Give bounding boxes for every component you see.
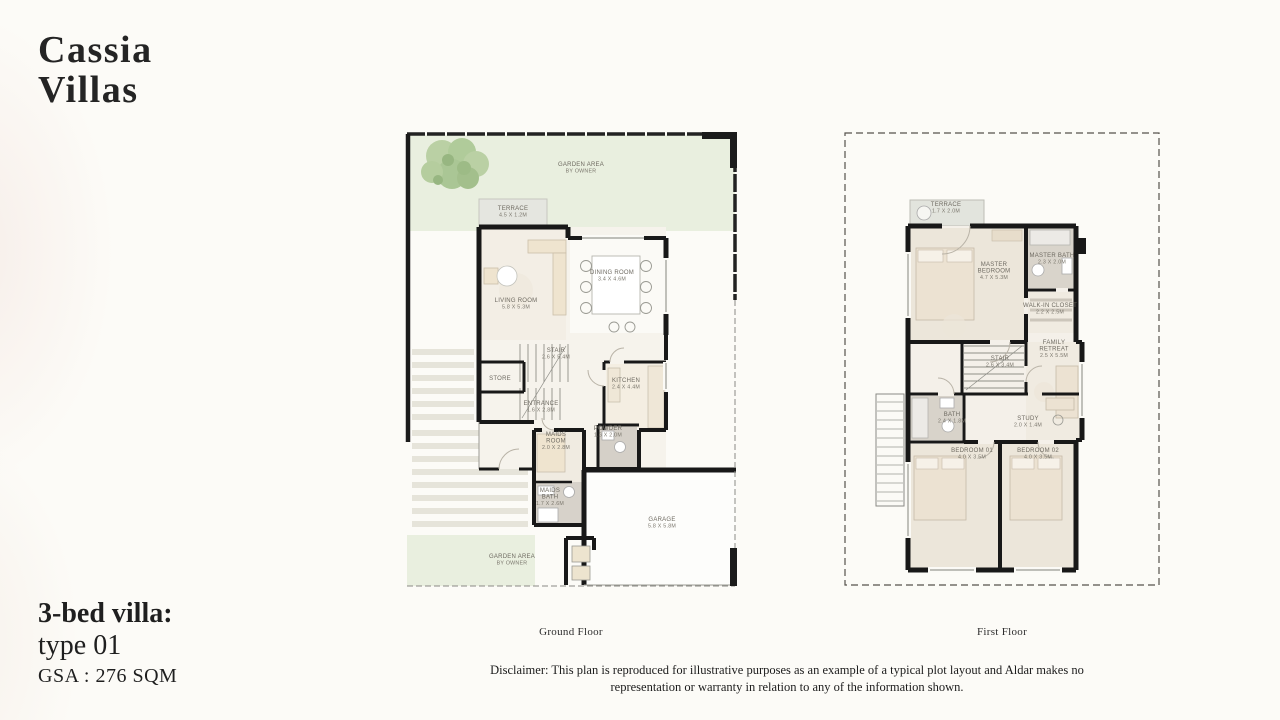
room-label-kitchen: KITCHEN2.4 X 4.4M (612, 378, 640, 391)
room-label-master-bedroom: MASTERBEDROOM4.7 X 5.3M (978, 262, 1011, 281)
title-line-1: Cassia (38, 30, 153, 70)
side-hatch-strip (876, 394, 904, 506)
caption-ground-floor: Ground Floor (404, 626, 738, 638)
villa-type-subtitle: type 01 (38, 630, 177, 662)
villa-type-title: 3-bed villa: (38, 598, 177, 630)
first-floor-svg: TERRACE1.7 X 2.0M MASTERBEDROOM4.7 X 5.3… (842, 130, 1162, 590)
first-floor-plan: TERRACE1.7 X 2.0M MASTERBEDROOM4.7 X 5.3… (842, 130, 1162, 590)
villa-gsa: GSA : 276 SQM (38, 662, 177, 690)
page-title: Cassia Villas (38, 30, 153, 110)
room-label-powder: POWDER1.6 X 2.0M (594, 426, 623, 439)
caption-first-floor: First Floor (842, 626, 1162, 638)
room-label-garage: GARAGE5.8 X 5.8M (648, 517, 676, 530)
room-label-terrace-ground: TERRACE4.5 X 1.2M (498, 206, 528, 219)
ground-floor-plan: GARDEN AREABY OWNER TERRACE4.5 X 1.2M LI… (404, 130, 738, 590)
villa-info: 3-bed villa: type 01 GSA : 276 SQM (38, 598, 177, 690)
disclaimer-text: Disclaimer: This plan is reproduced for … (480, 662, 1094, 696)
room-label-family-retreat: FAMILYRETREAT2.5 X 5.5M (1039, 340, 1068, 359)
room-label-terrace-first: TERRACE1.7 X 2.0M (931, 202, 961, 215)
room-label-store: STORE (489, 376, 511, 382)
room-label-study: STUDY2.0 X 1.4M (1014, 416, 1042, 429)
room-label-entrance: ENTRANCE1.6 X 2.8M (523, 401, 558, 414)
ground-floor-svg: GARDEN AREABY OWNER TERRACE4.5 X 1.2M LI… (404, 130, 738, 590)
title-line-2: Villas (38, 70, 153, 110)
